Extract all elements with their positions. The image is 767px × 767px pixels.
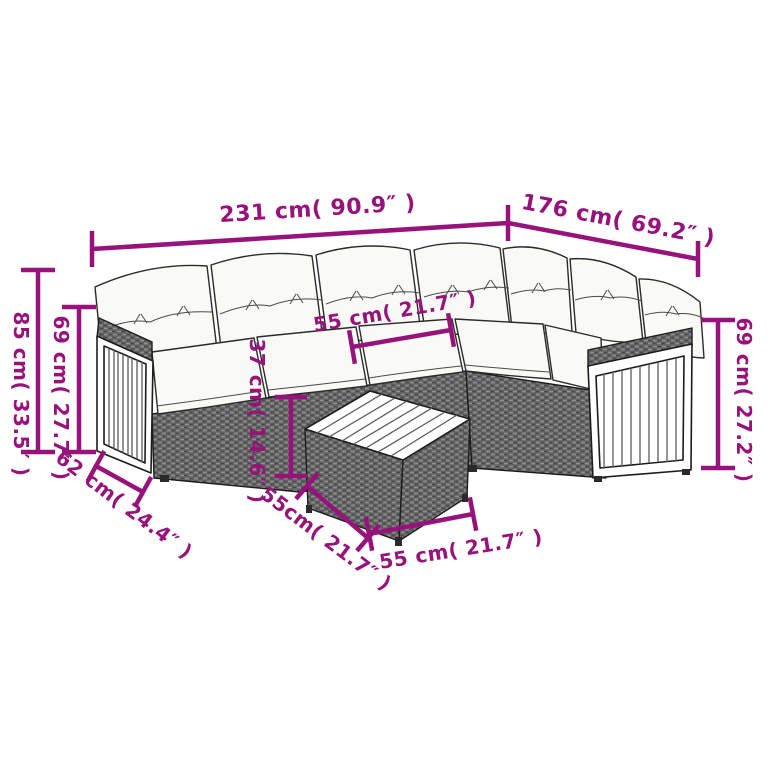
table-foot (462, 494, 468, 502)
furniture-dimension-diagram: 231 cm( 90.9″ ) 176 cm( 69.2″ ) 85 cm( 3… (0, 0, 767, 767)
seat-cushion (455, 319, 551, 379)
dim-label-table-height: 37 cm( 14.6″ ) (245, 339, 269, 504)
sofa-illustration (95, 243, 704, 546)
coffee-table (305, 391, 470, 546)
dimension-diagram-canvas: 231 cm( 90.9″ ) 176 cm( 69.2″ ) 85 cm( 3… (0, 0, 767, 767)
dim-label-sofa-length-left: 231 cm( 90.9″ ) (219, 191, 417, 228)
sofa-foot (160, 475, 169, 482)
right-arm (588, 328, 692, 482)
dim-right-height: 69 cm( 27.2″ ) (701, 318, 756, 483)
sofa-foot (468, 465, 477, 472)
sofa-foot (682, 469, 690, 475)
sofa-foot (594, 476, 602, 482)
left-arm (97, 318, 153, 473)
back-cushion (570, 259, 643, 343)
dim-label-total-height: 85 cm( 33.5″ ) (9, 312, 33, 477)
dim-label-right-height: 69 cm( 27.2″ ) (732, 318, 756, 483)
table-foot (395, 537, 402, 546)
dim-total-height: 85 cm( 33.5″ ) (9, 270, 55, 476)
dimension-line (701, 320, 735, 468)
left-arm-panel-inner-frame (104, 346, 146, 463)
